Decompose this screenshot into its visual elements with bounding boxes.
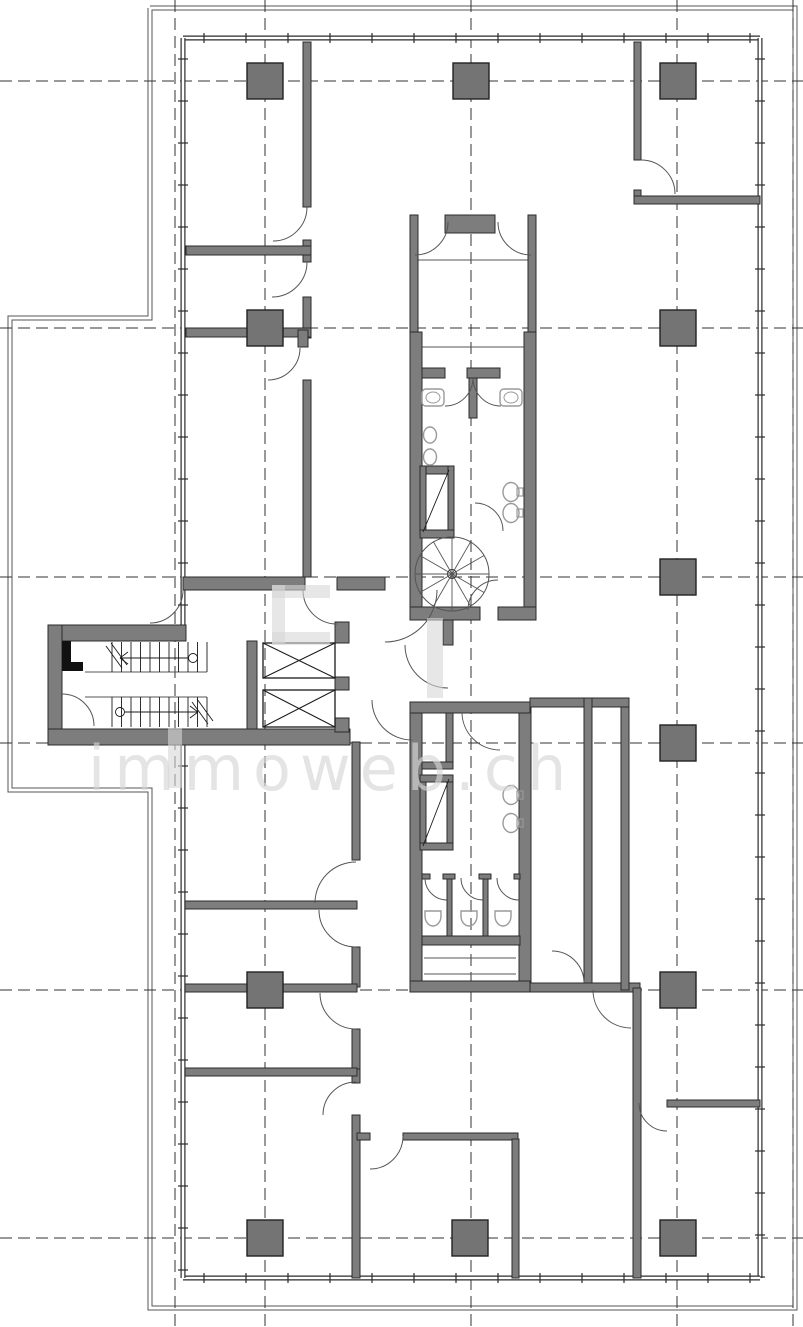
wall (422, 874, 430, 879)
wall (530, 698, 629, 707)
wall (335, 718, 349, 732)
wall (185, 1068, 357, 1076)
floor-plan-svg: immoweb.ch (0, 0, 803, 1327)
door-swing-arc (268, 348, 300, 380)
wall (298, 330, 308, 347)
wall (445, 215, 495, 233)
wall (633, 988, 641, 1278)
wall (303, 380, 311, 577)
door-swing-arc (150, 590, 183, 623)
toilet-tank (517, 509, 523, 517)
stair-arrow-start (189, 654, 198, 663)
wall (410, 215, 418, 332)
structural-column (660, 1220, 696, 1256)
wall (335, 677, 349, 690)
wall (498, 607, 536, 620)
sink-bowl (426, 392, 440, 403)
wall (483, 876, 488, 936)
wall (48, 625, 62, 745)
door-swing-arc (415, 222, 448, 255)
wall (443, 874, 455, 879)
structural-column (660, 725, 696, 761)
structural-column (660, 972, 696, 1008)
door-swing-arc (272, 262, 307, 297)
wall (479, 874, 491, 879)
floor-plan-drawing: immoweb.ch (0, 0, 803, 1327)
door-swing-arc (552, 951, 584, 983)
duct-diagonal (423, 470, 449, 532)
wall (186, 246, 311, 255)
urinal (424, 449, 437, 465)
wall (303, 42, 311, 207)
watermark-logo-shape (272, 632, 330, 645)
stair-break-mark (197, 699, 213, 721)
structural-column (247, 63, 283, 99)
door-swing-arc (323, 1082, 356, 1115)
wall (410, 607, 480, 620)
toilet-stall (461, 911, 477, 926)
stair-break-mark (106, 646, 122, 668)
structural-column (660, 559, 696, 595)
door-swing-arc (315, 862, 356, 903)
wall (247, 641, 257, 729)
wall (352, 947, 360, 987)
structural-column (452, 1220, 488, 1256)
wall (443, 620, 453, 645)
stair-arrow-start (116, 708, 125, 717)
door-swing-arc (320, 993, 356, 1029)
door-swing-arc (639, 1103, 667, 1131)
toilet-stall (425, 911, 441, 926)
spiral-stair-tread (434, 542, 453, 574)
wall (447, 876, 452, 936)
wall (410, 981, 530, 992)
door-swing-arc (62, 694, 94, 726)
wall (528, 215, 536, 332)
wall (467, 368, 500, 378)
urinal (424, 427, 437, 443)
door-swing-arc (593, 990, 631, 1028)
toilet-stall (495, 911, 511, 926)
door-swing-arc (370, 1136, 403, 1169)
door-swing-arc (475, 503, 503, 531)
stair-arrow-head (190, 712, 198, 718)
door-swing-arc (273, 207, 307, 241)
door-swing-arc (319, 910, 356, 947)
door-swing-arc (461, 878, 483, 900)
wall (420, 843, 453, 850)
wall (524, 332, 536, 620)
wall (335, 622, 349, 643)
wall (48, 625, 186, 641)
structural-column (660, 63, 696, 99)
structural-column (660, 310, 696, 346)
wall (337, 577, 385, 590)
wall (420, 466, 426, 536)
wall (469, 378, 477, 418)
wall (584, 698, 592, 992)
wall (514, 874, 520, 879)
wall (621, 707, 629, 990)
wall (667, 1100, 760, 1107)
spiral-stair-tread (452, 542, 471, 574)
wall (185, 901, 357, 909)
wall (352, 1029, 360, 1071)
watermark-text: immoweb.ch (88, 732, 575, 805)
stair-break-mark (192, 702, 208, 724)
toilet-tank (517, 488, 523, 496)
structural-column (247, 310, 283, 346)
wall (634, 196, 760, 204)
wall (634, 42, 641, 160)
door-swing-arc (641, 160, 675, 194)
door-swing-arc (498, 222, 531, 255)
spiral-stair-tread (452, 574, 471, 606)
spiral-stair-tread (420, 556, 452, 575)
door-swing-arc (497, 878, 519, 900)
wall (448, 466, 454, 536)
structural-column (247, 972, 283, 1008)
wall (410, 702, 530, 713)
structural-column (453, 63, 489, 99)
wall (403, 1133, 518, 1140)
spiral-stair-tread (452, 556, 484, 575)
wall (422, 368, 445, 378)
wall (422, 936, 520, 945)
structural-column (247, 1220, 283, 1256)
sink-bowl (504, 392, 518, 403)
wall-black-accent (62, 662, 83, 671)
door-swing-arc (425, 878, 447, 900)
watermark-logo-shape (427, 618, 443, 698)
wall (357, 1133, 370, 1140)
wall (512, 1139, 519, 1278)
